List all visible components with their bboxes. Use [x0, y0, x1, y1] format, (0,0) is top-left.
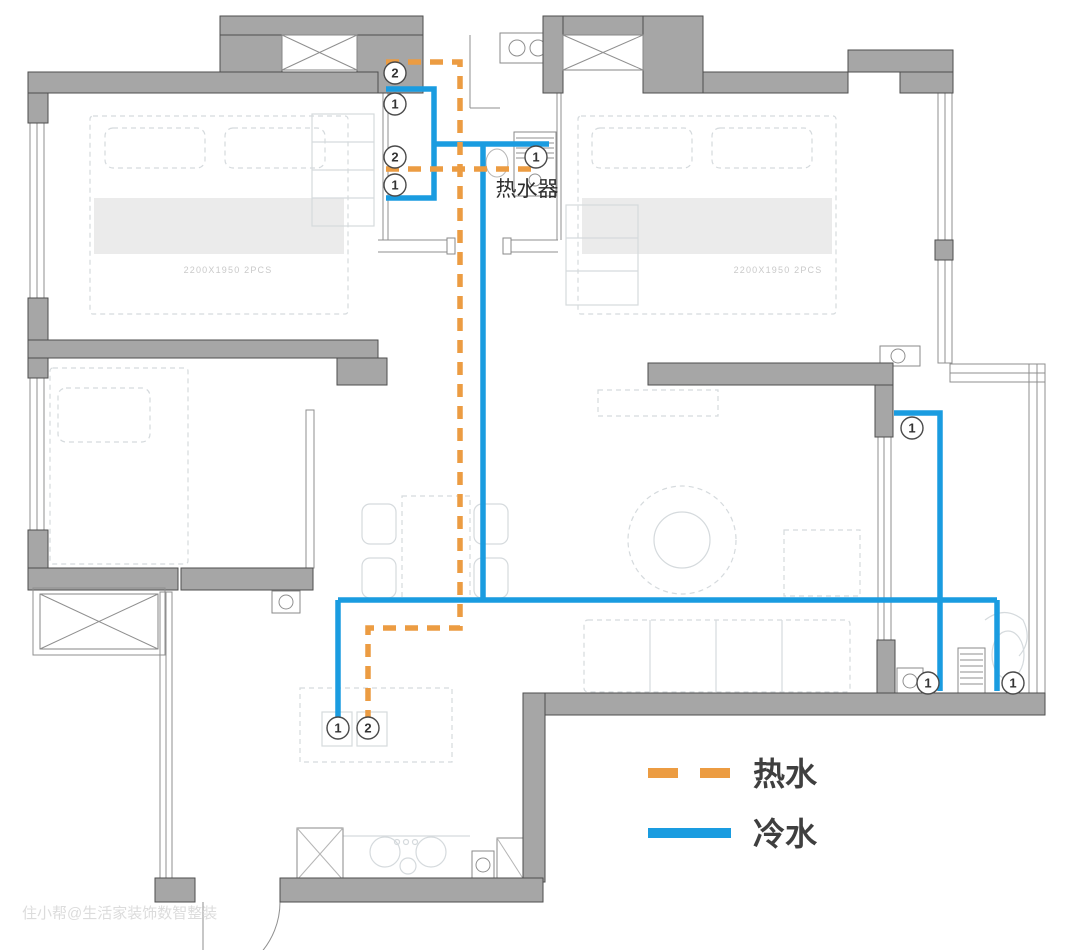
wall-segment — [220, 16, 423, 35]
wall-segment — [875, 385, 893, 437]
svg-text:1: 1 — [391, 97, 398, 112]
legend: 热水 冷水 — [648, 756, 818, 852]
svg-text:1: 1 — [1009, 676, 1016, 691]
outlet-marker-2: 2 — [384, 146, 406, 168]
furniture-living — [584, 390, 860, 692]
wall-segment — [28, 72, 378, 93]
legend-cold-label: 冷水 — [753, 816, 818, 852]
outlet-marker-1: 1 — [384, 93, 406, 115]
svg-text:2: 2 — [391, 66, 398, 81]
washer — [958, 648, 985, 693]
wall-segment — [28, 340, 378, 358]
wall-segment — [540, 693, 1045, 715]
cold-water-pipes — [338, 89, 997, 719]
svg-text:1: 1 — [924, 676, 931, 691]
furniture-right-bedroom — [566, 116, 836, 314]
wall-segment — [181, 568, 313, 590]
wall-segment — [703, 72, 848, 93]
outlet-marker-2: 2 — [357, 717, 379, 739]
legend-hot-label: 热水 — [753, 756, 818, 792]
outlet-marker-1: 1 — [901, 417, 923, 439]
outlet-marker-1: 1 — [1002, 672, 1024, 694]
wall-segment — [155, 878, 195, 902]
floor-plan-canvas: 2121111112 热水器 2200X1950 2PCS 2200X1950 … — [0, 0, 1080, 950]
toilet — [486, 149, 508, 177]
floorplan-svg: 2121111112 热水器 2200X1950 2PCS 2200X1950 … — [0, 0, 1080, 950]
wall-segment — [543, 16, 563, 93]
legend-item-cold: 冷水 — [648, 816, 818, 852]
wall-segment — [523, 693, 545, 882]
shaft-xbox — [282, 35, 357, 70]
hot-water-pipe — [368, 62, 460, 719]
bay-window-xbox — [33, 588, 165, 655]
cold-water-pipe — [894, 413, 940, 691]
bed-size-label-left: 2200X1950 2PCS — [184, 265, 273, 275]
furniture-left-bedroom — [90, 114, 374, 314]
wall-segment — [28, 568, 178, 590]
outlet-marker-1: 1 — [384, 174, 406, 196]
wall-segment — [220, 35, 282, 75]
furniture-middle-bedroom — [50, 368, 188, 564]
svg-text:1: 1 — [532, 150, 539, 165]
wall-segment — [28, 298, 48, 378]
svg-text:1: 1 — [908, 421, 915, 436]
wall-segment — [280, 878, 543, 902]
wall-segment — [848, 50, 953, 72]
watermark: 住小帮@生活家装饰数智整装 — [22, 904, 217, 922]
wall-segment — [877, 640, 895, 695]
water-heater-label: 热水器 — [496, 178, 559, 201]
svg-text:2: 2 — [391, 150, 398, 165]
wall-segment — [643, 16, 703, 93]
outlet-marker-1: 1 — [327, 717, 349, 739]
furniture-dining — [362, 496, 508, 600]
wall-segment — [28, 93, 48, 123]
svg-text:1: 1 — [334, 721, 341, 736]
wall-segment — [935, 240, 953, 260]
legend-item-hot: 热水 — [648, 756, 818, 792]
bed-size-label-right: 2200X1950 2PCS — [734, 265, 823, 275]
svg-text:1: 1 — [391, 178, 398, 193]
wall-segment — [337, 358, 387, 385]
furniture-right-balcony — [985, 613, 1027, 680]
wall-segment — [563, 16, 643, 35]
outlet-marker-2: 2 — [384, 62, 406, 84]
wall-segment — [900, 72, 953, 93]
shaft-xbox — [563, 35, 643, 70]
outlet-marker-1: 1 — [525, 146, 547, 168]
kitchen-sink — [472, 851, 494, 880]
svg-text:2: 2 — [364, 721, 371, 736]
outlet-marker-1: 1 — [917, 672, 939, 694]
wall-segment — [648, 363, 893, 385]
